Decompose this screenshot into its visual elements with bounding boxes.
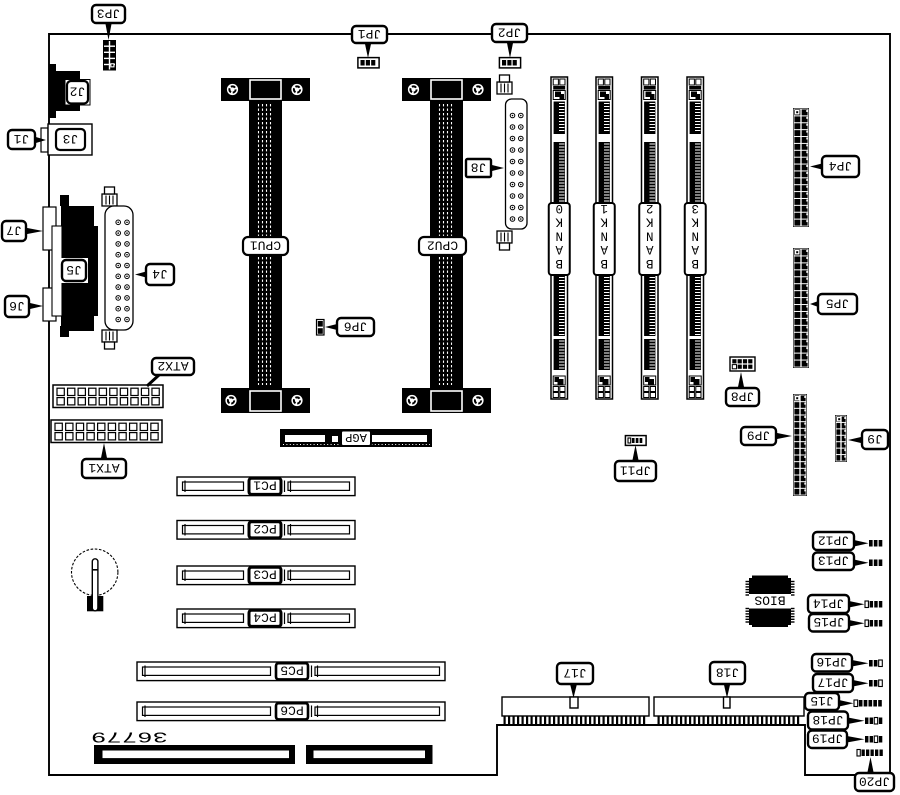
svg-text:BANK0: BANK0 [555,201,563,270]
svg-text:BANK3: BANK3 [691,201,699,270]
svg-text:AGP: AGP [345,430,367,444]
svg-text:JP3: JP3 [97,5,120,20]
svg-text:JP15: JP15 [813,614,844,629]
svg-text:JP9: JP9 [747,427,770,442]
svg-text:J15: J15 [810,693,833,708]
svg-text:36779: 36779 [91,728,168,745]
svg-text:J5: J5 [66,262,82,277]
svg-text:JP16: JP16 [816,654,847,669]
svg-text:J9: J9 [867,431,883,446]
svg-text:JP18: JP18 [812,712,843,727]
svg-text:J1: J1 [14,131,30,146]
svg-text:ATX2: ATX2 [157,358,188,373]
svg-text:JP6: JP6 [344,318,367,333]
svg-text:BANK1: BANK1 [600,201,608,270]
svg-text:JP2: JP2 [498,24,521,39]
svg-text:J2: J2 [70,84,86,99]
svg-text:BANK2: BANK2 [646,201,654,270]
svg-text:PC2: PC2 [253,521,276,536]
svg-text:CPU2: CPU2 [427,237,458,252]
svg-text:BIOS: BIOS [754,592,785,607]
svg-text:J4: J4 [152,266,168,281]
svg-text:CPU1: CPU1 [250,237,281,252]
svg-text:JP14: JP14 [813,595,844,610]
svg-text:PC4: PC4 [253,610,277,625]
svg-text:JP13: JP13 [818,553,849,568]
svg-text:JP4: JP4 [829,158,853,173]
svg-text:J17: J17 [563,665,586,680]
svg-text:JP1: JP1 [358,26,382,41]
svg-text:J8: J8 [471,159,487,174]
svg-text:PC3: PC3 [253,567,276,582]
svg-text:J3: J3 [63,131,79,146]
svg-text:PC1: PC1 [253,478,277,493]
svg-text:JP11: JP11 [620,462,651,477]
svg-text:JP17: JP17 [817,674,848,689]
svg-text:J7: J7 [6,222,22,237]
svg-text:JP20: JP20 [859,773,890,788]
svg-text:PC5: PC5 [280,663,303,678]
svg-text:J6: J6 [9,298,25,313]
svg-text:J18: J18 [716,664,739,679]
svg-text:ATX1: ATX1 [88,460,119,475]
svg-text:JP8: JP8 [731,388,754,403]
svg-text:PC6: PC6 [280,703,303,718]
svg-text:JP12: JP12 [818,532,849,547]
svg-text:JP19: JP19 [812,731,843,746]
svg-text:JP5: JP5 [826,295,849,310]
